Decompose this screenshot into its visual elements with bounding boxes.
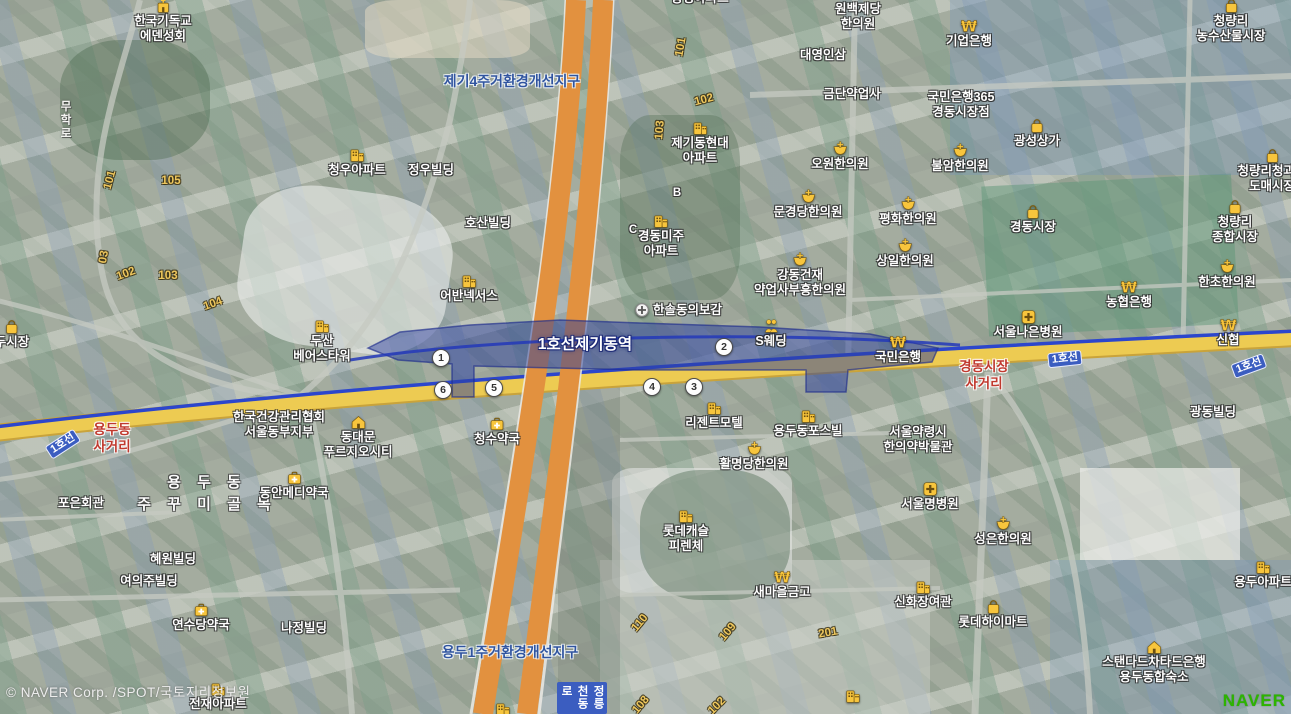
map-poi[interactable]: 서울명병원 — [901, 481, 959, 512]
map-poi[interactable]: 한국건강관리협회서울동부지부 — [233, 410, 325, 440]
pharmacy-icon — [193, 602, 209, 618]
bag-icon — [1227, 199, 1243, 215]
bag-icon — [1029, 118, 1045, 134]
map-poi[interactable]: 어반넥서스 — [440, 273, 498, 304]
svg-text:₩: ₩ — [774, 569, 790, 585]
map-poi[interactable]: 서울약령시한의약박물관 — [883, 425, 952, 455]
intersection-label: 용두동사거리 — [93, 421, 130, 455]
poi-label: 금단약업사 — [823, 87, 881, 102]
med-icon — [832, 141, 848, 157]
poi-label: 국민은행365경동시장점 — [928, 90, 995, 120]
building-icon — [692, 120, 708, 136]
map-poi[interactable]: 두산베어스타워 — [293, 318, 351, 364]
map-poi[interactable]: 금단약업사 — [823, 87, 881, 102]
district-label: 제기4주거환경개선지구 — [444, 71, 581, 91]
poi-label: 롯데캐슬피렌체 — [663, 524, 709, 554]
poi-label: 용두동포스빌 — [773, 424, 842, 439]
station-exit-2[interactable]: 2 — [715, 338, 733, 356]
map-poi[interactable]: 용두아파트 — [1234, 559, 1291, 590]
building-icon — [845, 688, 861, 704]
map-poi[interactable]: ₩기업은행 — [946, 18, 992, 49]
med-icon — [1219, 259, 1235, 275]
station-exit-6[interactable]: 6 — [434, 381, 452, 399]
building-icon — [1255, 559, 1271, 575]
map-poi[interactable]: ₩국민은행 — [875, 334, 921, 365]
road-name-label: 무학로 — [57, 100, 73, 141]
building-icon — [706, 400, 722, 416]
poi-label: 연수당약국 — [172, 618, 230, 633]
poi-label: 국민은행 — [875, 350, 921, 365]
map-poi[interactable]: 성은한의원 — [974, 516, 1032, 547]
poi-label: 새마을금고 — [753, 585, 811, 600]
street-name-label: 용 두 동주 꾸 미 골 목 — [137, 472, 277, 516]
wedding-icon — [763, 318, 779, 334]
map-poi[interactable]: 혜원빌딩 — [150, 552, 196, 567]
poi-label: 경동미주아파트 — [638, 229, 684, 259]
poi-label: 스탠다드차타드은행용두동합숙소 — [1102, 655, 1206, 685]
poi-label: 신화장여관 — [894, 595, 952, 610]
station-name-label[interactable]: 1호선제기동역 — [538, 332, 632, 354]
poi-label: 정우빌딩 — [408, 163, 454, 178]
poi-label: 광성상가 — [1014, 134, 1060, 149]
church-icon — [155, 0, 171, 14]
house-icon — [350, 414, 366, 430]
station-exit-5[interactable]: 5 — [485, 379, 503, 397]
won-icon: ₩ — [961, 18, 977, 34]
poi-label: 청우아파트 — [328, 163, 386, 178]
map-poi[interactable]: 청우아파트 — [328, 147, 386, 178]
map-poi[interactable]: 문경당한의원 — [773, 189, 842, 220]
map-poi[interactable]: ₩신협 — [1216, 317, 1239, 348]
poi-label: 한국기독교에덴성회 — [134, 14, 192, 44]
map-poi[interactable]: 광성상가 — [1014, 118, 1060, 149]
bag-icon — [4, 319, 20, 335]
map-poi[interactable]: 평화한의원 — [879, 196, 937, 227]
won-icon: ₩ — [890, 334, 906, 350]
building-icon — [495, 701, 511, 714]
building-number: 103 — [158, 270, 177, 282]
won-icon: ₩ — [774, 569, 790, 585]
poi-label: 동대문푸르지오시티 — [323, 430, 392, 460]
building-icon — [678, 508, 694, 524]
poi-label: 성은한의원 — [974, 532, 1032, 547]
map-poi[interactable]: 동안메디약국 — [259, 470, 328, 501]
building-number: C — [629, 224, 637, 236]
svg-text:₩: ₩ — [1121, 279, 1137, 295]
poi-label: 문경당한의원 — [773, 205, 842, 220]
map-poi[interactable]: 여의주빌딩 — [120, 574, 178, 589]
poi-label: 동성아파트 — [671, 0, 729, 6]
building-icon — [314, 318, 330, 334]
map-poi[interactable]: 국민은행365경동시장점 — [928, 90, 995, 120]
map-poi[interactable]: 광동빌딩 — [1190, 405, 1236, 420]
circlecross-icon — [634, 302, 650, 318]
naver-watermark: NAVER — [1223, 691, 1286, 711]
map-poi[interactable]: 포은회관 — [58, 496, 104, 511]
poi-label: 광동빌딩 — [1190, 405, 1236, 420]
won-icon: ₩ — [1121, 279, 1137, 295]
building-icon — [461, 273, 477, 289]
map-poi[interactable]: 나정빌딩 — [281, 621, 327, 636]
poi-label: 청량리청과물도매시장 — [1237, 164, 1291, 194]
svg-text:₩: ₩ — [890, 334, 906, 350]
med-icon — [952, 143, 968, 159]
map-poi[interactable]: 상일한의원 — [876, 238, 934, 269]
svg-text:₩: ₩ — [1220, 317, 1236, 333]
poi-label: 평화한의원 — [879, 212, 937, 227]
station-exit-4[interactable]: 4 — [643, 378, 661, 396]
poi-label: 호산빌딩 — [465, 216, 511, 231]
poi-label: 서울나은병원 — [993, 325, 1062, 340]
map-poi[interactable]: S웨딩 — [755, 318, 786, 349]
map-poi[interactable]: 한솔동의보감 — [634, 302, 722, 318]
map-poi[interactable]: 원백제당한의원 — [835, 2, 881, 32]
poi-label: S웨딩 — [755, 334, 786, 349]
med-icon — [800, 189, 816, 205]
map-canvas[interactable]: 한국기독교에덴성회청우아파트정우빌딩동성아파트제기동현대아파트경동미주아파트원백… — [0, 0, 1291, 714]
poi-label: 한솔동의보감 — [653, 303, 722, 318]
map-poi[interactable]: 용두동포스빌 — [773, 408, 842, 439]
poi-label: 리젠트모텔 — [685, 416, 743, 431]
map-poi[interactable]: 청량리농수산물시장 — [1196, 0, 1265, 44]
poi-label: 롯데하이마트 — [958, 615, 1027, 630]
med-icon — [746, 441, 762, 457]
poi-label: 청량리종합시장 — [1212, 215, 1258, 245]
poi-label: 기업은행 — [946, 34, 992, 49]
poi-label: 상일한의원 — [876, 254, 934, 269]
poi-label: 서울명병원 — [901, 497, 959, 512]
poi-label: 원백제당한의원 — [835, 2, 881, 32]
map-copyright: © NAVER Corp. /SPOT/국토지리정보원 — [6, 681, 250, 701]
med-icon — [900, 196, 916, 212]
map-poi[interactable]: 불암한의원 — [931, 143, 989, 174]
poi-label: 두시장 — [0, 335, 29, 350]
poi-label: 청수약국 — [474, 432, 520, 447]
med-icon — [792, 252, 808, 268]
map-poi[interactable]: 정우빌딩 — [408, 163, 454, 178]
map-poi[interactable]: 동성아파트 — [671, 0, 729, 6]
map-poi[interactable]: 강동건재약업사부흥한의원 — [754, 252, 846, 298]
poi-label: 동안메디약국 — [259, 486, 328, 501]
district-label: 용두1주거환경개선지구 — [442, 642, 579, 662]
bag-icon — [1264, 148, 1280, 164]
poi-label: 용두아파트 — [1234, 575, 1291, 590]
map-poi[interactable]: 서울나은병원 — [993, 309, 1062, 340]
building-icon — [915, 579, 931, 595]
house-icon — [1146, 639, 1162, 655]
map-poi[interactable]: 오원한의원 — [811, 141, 869, 172]
road-name-label: 정릉천동로 — [557, 682, 607, 714]
bag-icon — [985, 599, 1001, 615]
map-poi[interactable]: 활명당한의원 — [719, 441, 788, 472]
map-poi[interactable]: 연수당약국 — [172, 602, 230, 633]
poi-label: 농협은행 — [1106, 295, 1152, 310]
poi-label: 불암한의원 — [931, 159, 989, 174]
pharmacy-icon — [286, 470, 302, 486]
building-number: B — [673, 187, 681, 199]
map-poi[interactable]: 청량리종합시장 — [1212, 199, 1258, 245]
bag-icon — [1025, 204, 1041, 220]
poi-label: 한초한의원 — [1198, 275, 1256, 290]
poi-label: 대영인삼 — [800, 48, 846, 63]
building-icon — [349, 147, 365, 163]
map-poi[interactable]: 리젠트모텔 — [685, 400, 743, 431]
pharmacy-icon — [489, 416, 505, 432]
poi-label: 신협 — [1216, 333, 1239, 348]
map-poi[interactable] — [495, 701, 511, 714]
map-poi[interactable]: 경동시장 — [1010, 204, 1056, 235]
building-icon — [800, 408, 816, 424]
building-number: 105 — [161, 175, 180, 187]
poi-label: 경동시장 — [1010, 220, 1056, 235]
poi-label: 제기동현대아파트 — [671, 136, 729, 166]
map-poi[interactable]: 호산빌딩 — [465, 216, 511, 231]
map-poi[interactable]: 청량리청과물도매시장 — [1237, 148, 1291, 194]
building-number: 103 — [653, 120, 667, 140]
map-poi[interactable]: 롯데하이마트 — [958, 599, 1027, 630]
map-poi[interactable]: ₩농협은행 — [1106, 279, 1152, 310]
station-exit-1[interactable]: 1 — [432, 349, 450, 367]
med-icon — [897, 238, 913, 254]
building-icon — [653, 213, 669, 229]
won-icon: ₩ — [1220, 317, 1236, 333]
station-exit-3[interactable]: 3 — [685, 378, 703, 396]
map-poi[interactable]: 대영인삼 — [800, 48, 846, 63]
poi-label: 활명당한의원 — [719, 457, 788, 472]
map-poi[interactable]: 한초한의원 — [1198, 259, 1256, 290]
poi-label: 오원한의원 — [811, 157, 869, 172]
poi-label: 강동건재약업사부흥한의원 — [754, 268, 846, 298]
map-poi[interactable]: ₩새마을금고 — [753, 569, 811, 600]
map-poi[interactable] — [845, 688, 861, 704]
poi-label: 서울약령시한의약박물관 — [883, 425, 952, 455]
map-poi[interactable]: 스탠다드차타드은행용두동합숙소 — [1102, 639, 1206, 685]
poi-label: 청량리농수산물시장 — [1196, 14, 1265, 44]
hospital-icon — [1020, 309, 1036, 325]
poi-label: 여의주빌딩 — [120, 574, 178, 589]
map-poi[interactable]: 한국기독교에덴성회 — [134, 0, 192, 44]
map-poi[interactable]: 제기동현대아파트 — [671, 120, 729, 166]
bag-icon — [1223, 0, 1239, 14]
map-poi[interactable]: 신화장여관 — [894, 579, 952, 610]
map-poi[interactable]: 경동미주아파트 — [638, 213, 684, 259]
map-poi[interactable]: 두시장 — [0, 319, 29, 350]
map-poi[interactable]: 청수약국 — [474, 416, 520, 447]
building-number: 03 — [97, 250, 111, 265]
map-poi[interactable]: 동대문푸르지오시티 — [323, 414, 392, 460]
svg-text:₩: ₩ — [961, 18, 977, 34]
hospital-icon — [922, 481, 938, 497]
poi-label: 혜원빌딩 — [150, 552, 196, 567]
poi-label: 포은회관 — [58, 496, 104, 511]
map-poi[interactable]: 롯데캐슬피렌체 — [663, 508, 709, 554]
med-icon — [995, 516, 1011, 532]
poi-label: 어반넥서스 — [440, 289, 498, 304]
poi-label: 나정빌딩 — [281, 621, 327, 636]
poi-label: 두산베어스타워 — [293, 334, 351, 364]
poi-label: 한국건강관리협회서울동부지부 — [233, 410, 325, 440]
intersection-label: 경동시장사거리 — [959, 358, 1009, 392]
